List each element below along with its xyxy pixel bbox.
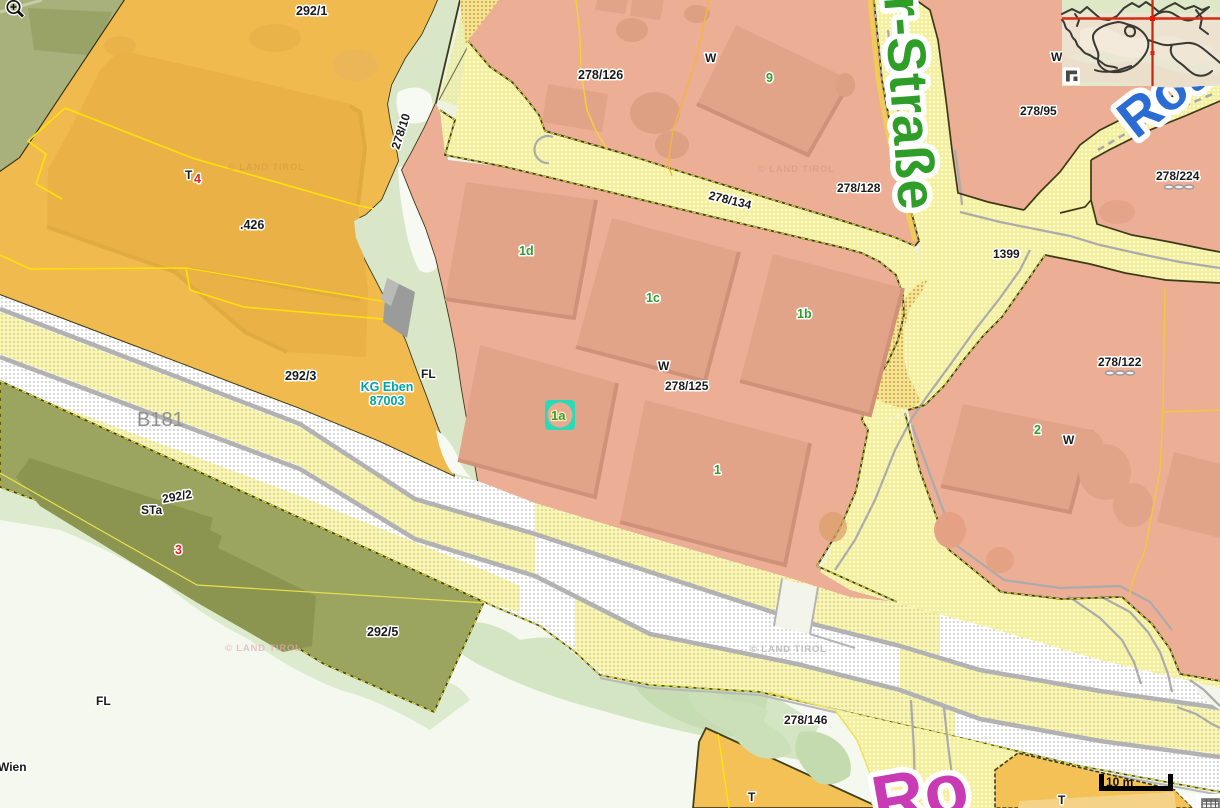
svg-text:T: T [185,168,193,182]
svg-text:© LAND TIROL: © LAND TIROL [228,162,305,173]
svg-text:3: 3 [175,543,182,557]
svg-text:© LAND TIROL: © LAND TIROL [758,164,835,175]
svg-text:278/224: 278/224 [1156,169,1200,183]
svg-text:W: W [658,359,670,373]
svg-text:1b: 1b [797,307,812,321]
svg-text:278/95: 278/95 [1020,104,1057,118]
svg-text:© LAND TIROL: © LAND TIROL [225,643,302,654]
svg-text:278/126: 278/126 [578,68,623,82]
svg-text:278/128: 278/128 [837,181,881,195]
svg-text:87003: 87003 [370,394,405,408]
svg-text:9: 9 [766,71,773,85]
svg-text:292/5: 292/5 [367,625,398,639]
svg-text:STa: STa [141,503,162,517]
svg-text:4: 4 [194,172,201,186]
svg-text:T: T [748,790,756,804]
svg-text:278/122: 278/122 [1098,355,1142,369]
svg-text:FL: FL [421,367,436,381]
svg-text:1a: 1a [551,408,566,423]
svg-text:278/125: 278/125 [665,379,709,393]
svg-text:278/146: 278/146 [784,713,828,727]
svg-text:W: W [1063,433,1075,447]
svg-text:FL: FL [96,694,111,708]
svg-text:© LAND TIROL: © LAND TIROL [750,644,827,655]
svg-text:1: 1 [714,463,721,477]
svg-text:292/3: 292/3 [285,369,316,383]
svg-text:292/1: 292/1 [296,4,327,18]
svg-text:Wien: Wien [0,760,27,774]
svg-text:1c: 1c [646,291,660,305]
svg-text:1399: 1399 [993,247,1020,261]
svg-text:.426: .426 [240,218,264,232]
svg-text:2: 2 [1034,423,1041,437]
svg-text:1d: 1d [519,244,534,258]
svg-text:B181: B181 [137,409,184,431]
svg-text:KG Eben: KG Eben [361,380,414,394]
svg-text:T: T [1058,793,1066,807]
svg-text:10 m: 10 m [1106,775,1133,789]
svg-text:W: W [1051,50,1063,64]
svg-text:W: W [705,51,717,65]
